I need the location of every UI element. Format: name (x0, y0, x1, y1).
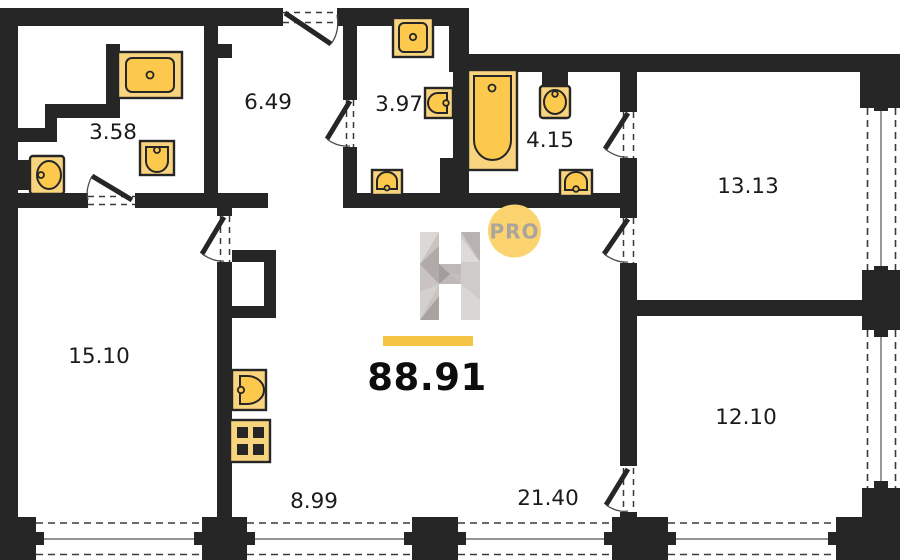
shower-fixture (118, 52, 182, 98)
room-area-laundry: 3.97 (375, 92, 423, 117)
floor-plan-svg: PRO 88.91 3.58 6.49 3.97 4.15 13.13 15.1… (0, 0, 900, 560)
room-area-wc: 3.58 (89, 120, 137, 145)
floor-plan: PRO 88.91 3.58 6.49 3.97 4.15 13.13 15.1… (0, 0, 900, 560)
sink-laundry-bottom-fixture (372, 170, 402, 195)
bathtub-fixture (468, 70, 517, 170)
room-area-bedroom-left: 15.10 (68, 344, 130, 369)
sink-wc-fixture (140, 141, 174, 175)
sink-laundry-fixture (425, 88, 453, 118)
door-laundry (327, 100, 354, 147)
washer-fixture (393, 18, 433, 57)
sink-bathroom-fixture (560, 170, 592, 196)
window-bedroom-bottom-right (868, 330, 896, 488)
window-bedroom-top-right (868, 104, 896, 273)
toilet-wc-fixture (18, 156, 64, 194)
room-area-living-zone: 21.40 (517, 486, 579, 511)
room-area-bedroom-top-right: 13.13 (717, 174, 779, 199)
door-bedroom-bottom-right (606, 468, 634, 512)
pro-badge-label: PRO (489, 220, 539, 244)
room-area-bathroom: 4.15 (526, 128, 574, 153)
room-area-kitchen-zone: 8.99 (290, 489, 338, 514)
window-bottom-2 (247, 523, 412, 555)
window-bottom-1 (36, 523, 202, 555)
logo-h-icon (420, 232, 480, 320)
door-bedroom-left (202, 216, 230, 262)
door-bedroom-top-right (604, 218, 634, 263)
door-entrance (283, 13, 338, 45)
door-bathroom (605, 112, 634, 158)
total-area-label: 88.91 (367, 356, 487, 399)
door-wc (87, 176, 135, 205)
window-bottom-4 (668, 523, 836, 555)
accent-bar (383, 336, 473, 346)
room-area-bedroom-bottom-right: 12.10 (715, 405, 777, 430)
logo: PRO 88.91 (367, 205, 541, 400)
room-area-hall: 6.49 (244, 90, 292, 115)
window-bottom-3 (458, 523, 612, 555)
toilet-bathroom-fixture (540, 86, 570, 118)
kitchen-sink-fixture (232, 370, 266, 410)
stove-fixture (230, 420, 270, 462)
